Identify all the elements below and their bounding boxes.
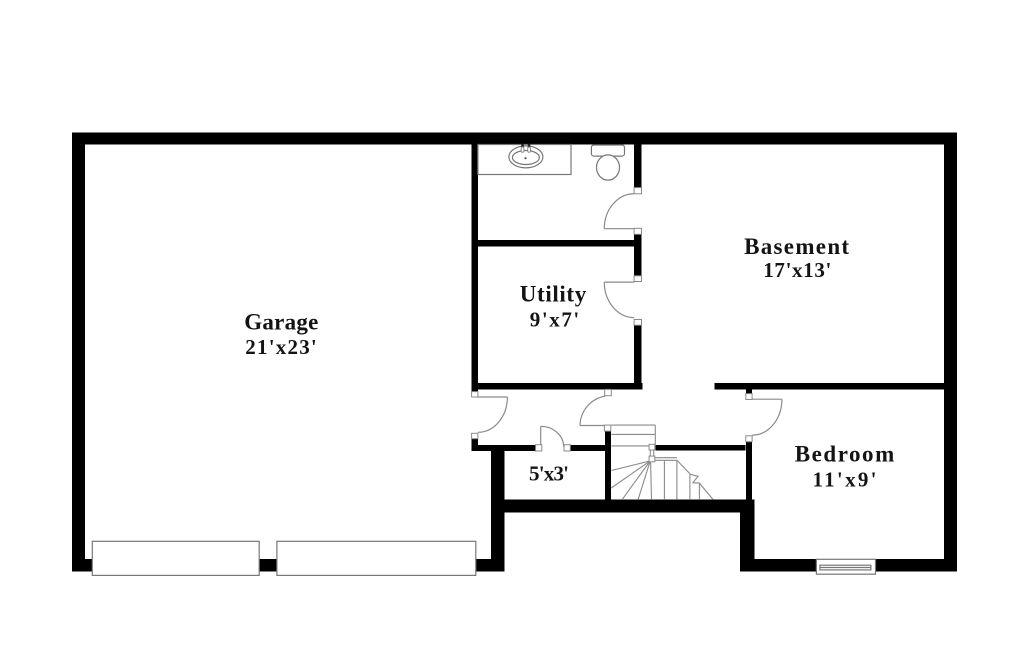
svg-text:Basement: Basement bbox=[744, 234, 849, 259]
svg-text:Garage: Garage bbox=[244, 309, 318, 334]
svg-text:11'x9': 11'x9' bbox=[813, 468, 877, 492]
svg-text:17'x13': 17'x13' bbox=[763, 258, 831, 282]
svg-text:5'x3': 5'x3' bbox=[529, 462, 569, 486]
svg-text:9'x7': 9'x7' bbox=[530, 307, 580, 331]
svg-text:Bedroom: Bedroom bbox=[795, 441, 895, 466]
svg-text:Utility: Utility bbox=[520, 281, 587, 306]
svg-text:21'x23': 21'x23' bbox=[245, 335, 317, 359]
